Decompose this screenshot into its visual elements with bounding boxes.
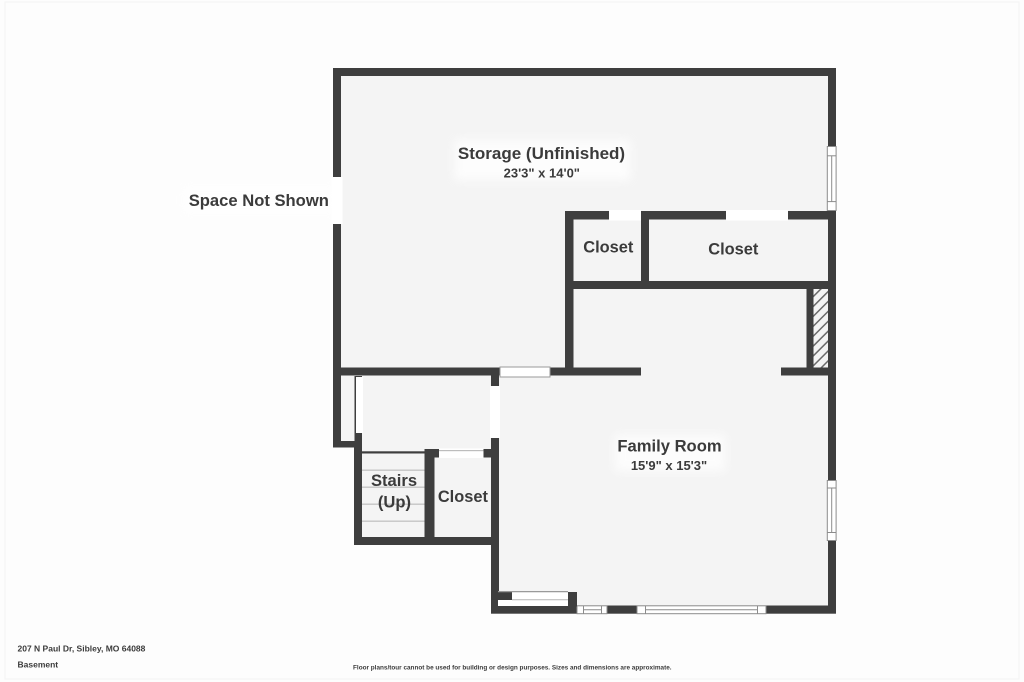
svg-text:207 N Paul Dr, Sibley, MO 6408: 207 N Paul Dr, Sibley, MO 64088 (18, 644, 146, 654)
svg-text:Closet: Closet (438, 488, 489, 506)
svg-text:Basement: Basement (18, 660, 59, 670)
svg-text:Stairs: Stairs (371, 471, 417, 490)
svg-text:(Up): (Up) (378, 493, 411, 512)
svg-text:Closet: Closet (583, 239, 634, 257)
svg-text:Floor plans/tour cannot be use: Floor plans/tour cannot be used for buil… (353, 665, 672, 672)
svg-text:Family Room: Family Room (617, 437, 721, 456)
svg-text:Storage (Unfinished): Storage (Unfinished) (458, 144, 625, 163)
svg-text:Space Not Shown: Space Not Shown (189, 191, 329, 210)
svg-text:Closet: Closet (708, 241, 759, 259)
svg-text:15'9" x 15'3": 15'9" x 15'3" (631, 458, 707, 473)
svg-text:23'3" x 14'0": 23'3" x 14'0" (504, 165, 580, 180)
